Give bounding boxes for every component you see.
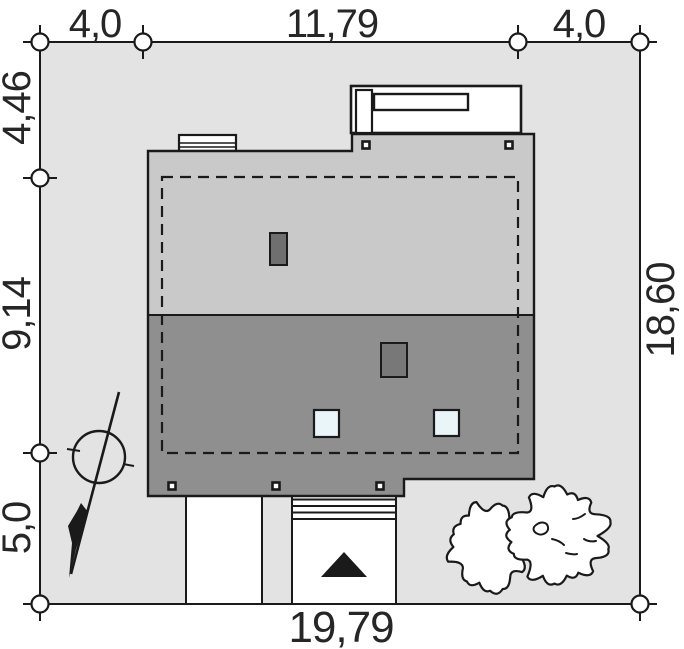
- site-plan-drawing: [0, 0, 684, 649]
- terrace-skylight: [374, 94, 468, 110]
- vent-icon: [363, 142, 370, 149]
- dimension-label-top-right: 4,0: [553, 4, 606, 44]
- boundary-marker: [632, 596, 649, 613]
- vent-icon: [169, 483, 176, 490]
- boundary-marker: [32, 34, 49, 51]
- dimension-label-right: 18,60: [641, 262, 681, 357]
- vent-icon: [506, 142, 513, 149]
- dimension-label-top-left: 4,0: [69, 4, 122, 44]
- driveway: [186, 496, 262, 603]
- boundary-marker: [32, 596, 49, 613]
- boundary-marker: [135, 34, 152, 51]
- vent-icon: [377, 483, 384, 490]
- dimension-label-left-lower: 5,0: [0, 502, 37, 555]
- dimension-label-left-middle: 9,14: [0, 277, 37, 351]
- chimney-lower: [381, 343, 407, 377]
- dimension-label-left-upper: 4,46: [0, 71, 37, 145]
- roof-window: [434, 410, 459, 436]
- boundary-marker: [32, 170, 49, 187]
- boundary-marker: [32, 445, 49, 462]
- roof-upper-plane: [148, 134, 534, 315]
- terrace-chimney: [356, 90, 372, 133]
- boundary-marker: [510, 34, 527, 51]
- chimney-upper: [270, 233, 287, 265]
- dimension-label-bottom: 19,79: [288, 606, 393, 649]
- roof-window: [314, 410, 339, 437]
- roof-lower-plane: [148, 315, 534, 496]
- site-plan: 4,0 11,79 4,0 4,46 9,14 5,0 18,60 19,79: [0, 0, 684, 649]
- vent-icon: [273, 483, 280, 490]
- boundary-marker: [632, 34, 649, 51]
- dimension-label-top-center: 11,79: [286, 4, 378, 44]
